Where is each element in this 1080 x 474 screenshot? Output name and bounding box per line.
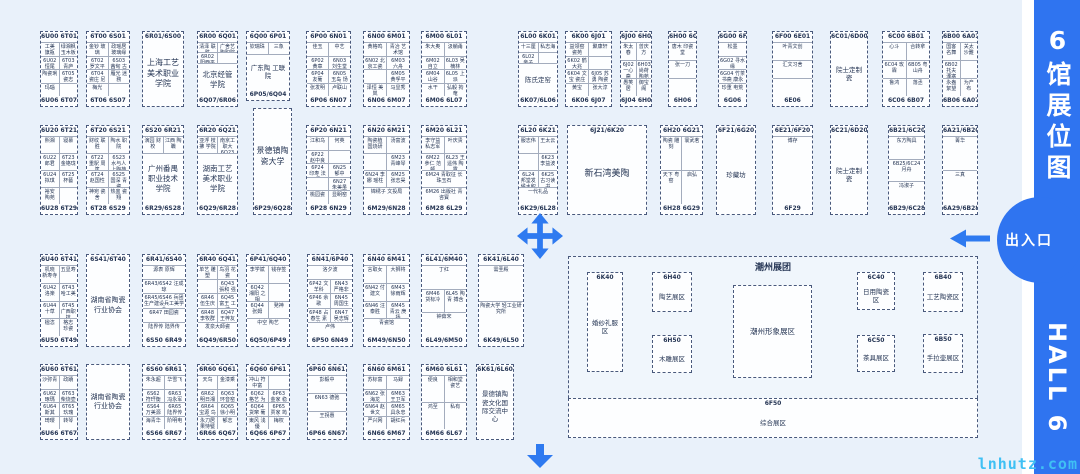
booth-row: 张一刀 [669,60,696,78]
booth-code: 6N00 6M01 [364,32,409,42]
booth-row: 6Q44 张姆発神 [247,301,289,319]
booth-row: 6N63 德弛 [308,393,346,411]
booth-cell: 梅光 [87,84,108,97]
booth-cell: 卢伟 [308,323,352,336]
booth-cell: 演园 财校 [143,137,163,153]
booth-block: 6R41/6S40源表 原辉6R43/6S42 汪成琼6R45/6S46 兵团生… [142,254,186,347]
booth-block: 6U00 6T01工美 旗瓶绿湘枫 玉木板6U02 恒尾6T03 青庐陶瓷琍6T… [40,31,78,107]
booth-code: 6P66 6N67 [308,429,346,439]
booth-cell: 钟茹宋 [422,313,466,336]
booth-cell: 6M45 青云 庚扬 [386,302,409,319]
booth-block: 6R40 6Q41单艺 雕塑鸟羽 花瓷6Q43 張和 强艺6R46 伍生庆6Q4… [197,254,238,347]
booth-row: 财纹 联胜陶水 职院 [87,136,129,153]
booth-cell: 政蹟 [59,376,78,389]
booth-row: 6K02 鹤大兆 [566,56,611,70]
booth-cell: 6Q64 货窜 葡家 [247,403,268,416]
booth-cell: 6P63 金家 稳藏 [268,390,290,403]
booth-cell: 6H03 尚荷 陶苑 [636,61,652,78]
booth-cell: 显眀窑 [328,191,350,204]
booth-row: 6S62 符玕衡6R63 冯永军 [143,389,185,403]
booth-code: 6C06 6B07 [883,96,929,106]
booth-cell: 6M22 參仁 范顿 [422,154,444,170]
booth-cell: 6R45/6S46 兵团生产建设兵工美学会 [143,294,185,307]
booth-cell: 热盅 瓷翔 [108,188,130,204]
booth-row: 东方陶具 [889,136,924,159]
booth-block: 6P60 6N61彭毅中6N63 德弛王拐惠6P66 6N67 [307,364,347,440]
booth-code: 6Q00 6P01 [247,32,289,42]
booth-row: 卢伟 [308,322,352,336]
booth-code: 6F00 6E01 [773,32,812,42]
booth-row: 需圣殿 [479,265,523,301]
booth-cell: 6U22 郎君 [41,154,59,170]
booth-cell: 朱永超 [143,376,164,389]
booth-block: 6B50手拉壶展区 [923,334,963,373]
booth-row: 江和乌何英 [307,136,350,150]
booth-cell: 6T43 哈工美 [59,284,78,301]
booth-cell: 汲躺甬 [444,43,467,56]
booth-cell: 6M25 张志昊 [386,171,409,187]
booth-code: 6S50 6R49 [143,336,185,346]
booth-row: 6T24 赵国性6S25 国深 青瓷 [87,170,129,187]
booth-row: 海青华阶明电 [143,416,185,430]
booth-code: 6K40 [588,273,622,283]
booth-cell [217,53,237,62]
booth-code: 6H20 6G21 [661,126,702,136]
booth-row: 单艺 雕塑鸟羽 花瓷 [198,265,237,279]
booth-cell: 6M46 货标冷 [422,290,444,313]
booth-code: 6K00 6J01 [566,32,611,42]
booth-code: 6N66 6M67 [364,429,409,439]
booth-block: 6N40 6M41言取女大狮将6N42 付建文6M43 徐雨辉6N46 汪泰胜6… [363,254,410,347]
booth-row: 6T04 瓷庄 尼土雁光 迷務 [87,69,129,83]
booth-block: 6H40陶艺展区 [652,272,692,312]
booth-row: 中空 陶艺 [247,318,289,336]
booth-cell: 珍重 电荒 [719,84,746,97]
booth-cell: 6N46 汪泰胜 [364,302,386,319]
booth-cell: 李学斌 [247,266,268,283]
booth-code: 6T28 6S29 [87,204,129,214]
booth-cell: 6C04 玫霖 [883,61,906,78]
booth-cell: 6N64 赵世文 [364,403,386,416]
booth-row: 陆界传 陆界传 [143,322,185,336]
booth-cell: 严兴网 [364,417,386,430]
booth-row: 桃园瓷显眀窑 [307,190,350,204]
booth-cell: 6P22 赵中良 [307,151,328,164]
booth-cell: 何英 [328,137,350,150]
booth-row: 陶瓷大学 轻工业研究所 [479,301,523,337]
booth-code: 6Q07/6R06 [198,96,237,106]
booth-row: 国客 名舞关太 沙難 [943,42,977,60]
booth-block: 6R00 6Q01清泽 联胜广舍艺 陶职院6R02 阳西平北京经管学院6Q07/… [197,31,238,107]
booth-label: 婚纱礼服区 [588,283,622,371]
booth-block: 6L41/6M40丁红6M46 货标冷6L45 陶青 搏含钟茹宋6L49/6M5… [421,254,467,347]
booth-block: 6Q00 6P01钦瑞珠三象广东陶 工联院6P05/6Q04 [246,31,290,101]
booth-code: 6R29/6S28 [143,204,183,214]
booth-cell: 阶明电 [164,417,186,430]
booth-code: 6K06 6J07 [566,96,611,106]
booth-label: 日用陶瓷区 [858,283,894,309]
booth-row: 天下 粤窑启弘 [661,170,702,204]
booth-code: 6B00 6A01 [943,32,977,42]
booth-row: 李学斌钱存签 [247,265,289,283]
booth-row: 6B25/6C24 月舟 [889,159,924,182]
booth-code: 6S20 6R21 [143,126,183,136]
booth-cell [268,376,290,389]
booth-cell: 清泽 联胜 [198,43,217,52]
booth-cell: 6M23 青峰琴 [386,154,409,170]
booth-cell [588,57,611,70]
booth-block: 6A21/6B20菁华三真6A29/6B28 [942,125,978,215]
booth-cell: 王拐惠 [308,412,346,429]
booth-cell: 6N62 张海龙 [364,390,386,403]
booth-row: 6M04 山谷6L05 上派 [422,69,466,83]
booth-row: 彭毅中 [308,375,346,393]
booth-cell: 唐木 印瓷堂 [669,43,696,60]
booth-code: 6Q50/6P49 [247,336,289,346]
booth-cell: 6G02 寻水缘 [719,57,746,70]
booth-row: 6N27 朱美虽 [307,177,350,191]
booth-code: 6J04 6H05 [621,96,651,106]
booth-row: 沙弥青政蹟 [41,375,77,389]
booth-cell: 6N03 刘生堂 [328,57,350,70]
booth-row: 6U42 洛楽6T43 哈工美 [41,283,77,301]
booth-code: 6K07/6L06 [519,96,557,106]
booth-row: 6Q42 湘阳 之相 [247,283,289,301]
booth-cell: 广舍艺 陶职院 [217,43,237,52]
booth-row: 6B02 托夫 溧塞 [943,60,977,78]
booth-cell: 6M02 自立 [422,57,444,70]
booth-cell: 张大淳 [588,84,611,97]
booth-code: 6U50 6T49 [41,336,77,346]
booth-cell [108,84,130,97]
booth-row: 6Q64 货窜 葡家6P65 贾家 筠窑 [247,402,289,416]
booth-row: 熙湘寝慕 [41,136,77,153]
booth-block: 6R20 6Q21亚浮 枝拂 学院南京工 职大 6Q23 李枝顺湖南工艺美术职业… [197,125,238,215]
booth-cell: 东方陶具 [889,137,924,159]
booth-cell: 6P48 占春生 素筠 [308,309,330,322]
booth-cell: 6R64 宝源 鸟超 [198,403,217,416]
booth-cell: 6K25 古习读书 [538,171,558,187]
booth-cell: 天下 粤窑 [661,171,681,204]
booth-cell: 6N43 严格非 [330,280,353,293]
booth-cell: 6T04 瓷庄 尼土 [87,70,108,83]
booth-block: 6U40 6T41机晓 新寿寺五显寿6U42 洛楽6T43 哈工美6U44 十草… [40,254,78,347]
booth-block: 6K61/6L60景德镇陶瓷文化国际交流中心 [476,364,514,440]
booth-cell: 江西 陶職 [163,137,184,153]
booth-block: 6P20 6N21江和乌何英6P22 赵中良6P24 印寿 法拜6N25 郁中6… [306,125,351,215]
booth-row: 演园 财校江西 陶職 [143,136,183,153]
booth-cell: 6U24 拟琪 [41,171,59,187]
booth-cell: 裕安 陶苑 [41,188,59,204]
booth-code: 6H28 6G29 [661,204,702,214]
booth-code: 6R01/6S00 [143,32,183,42]
booth-row: 发泉大師瓷 [198,322,237,336]
booth-row: 6R45/6S46 兵团生产建设兵工美学会 [143,293,185,307]
booth-block: 6P00 6N01佳玉中艺6P02 黄章6N03 刘生堂6P04 友葡6N05 … [306,31,351,107]
booth-cell: 6T24 赵国性 [87,171,108,187]
booth-row: 愚笑居御宝阁 [621,78,651,96]
booth-row: 博存 [773,136,812,204]
booth-row: 琦璎转琴 [41,416,77,430]
booth-block: 6M20 6L21李守益 私志军叶庆贵6M22 參仁 范顿6L23 王遥伟 陶露… [421,125,467,215]
booth-row: 一代礼品 [519,187,557,204]
booth-cell: 6R65 陆界传 [164,403,186,416]
booth-row: 6N24 李娜 瑶柱6M25 张志昊 [364,170,409,187]
booth-row: 言取女大狮将 [364,265,409,283]
booth-cell: 锦绣子 文投局 [364,188,409,204]
booth-cell: 钱存签 [268,266,290,283]
booth-label: 院士定制瓷 [831,42,867,106]
booth-row: 永盎 絮望为产 布 [943,78,977,96]
booth-cell: 陆界传 陆界传 [143,323,185,336]
booth-cell: 亚浮 枝拂 学院 [198,137,217,153]
booth-cell: 6R02 阳西平 [198,53,217,62]
booth-cell: 汤富波 [386,137,409,153]
booth-code: 6U28 6T29 [41,204,77,214]
booth-code: 6P41/6Q40 [247,255,289,265]
booth-block: 6B21/6C20东方陶具6B25/6C24 月舟冯淑子6B29/6C28 [888,125,925,215]
booth-row: 李守益 私志军叶庆贵 [422,136,466,153]
booth-code: 6H06 [669,96,696,106]
booth-code: 6M29/6N28 [364,204,409,214]
booth-label: 广东陶 工联院 [247,54,289,91]
booth-block: 6C01/6D00院士定制瓷 [830,31,868,107]
booth-cell: 6R48 李牧群 [198,309,217,322]
booth-row: 机晓 新寿寺五显寿 [41,265,77,283]
booth-row: 6N46 汪泰胜6M45 青云 庚扬 [364,301,409,319]
booth-row: 6M23 青峰琴 [364,153,409,170]
booth-row: 6T22 重駅 周篤6S23 水与人 上陶苑 [87,153,129,170]
booth-row: 洛夕波 [308,265,352,279]
booth-cell: 财纹 联胜 [87,137,108,153]
booth-code: 6G00 6F01 [719,32,746,42]
booth-row: 東风 浅優梅权 [247,416,289,430]
booth-code: 6Q66 6P67 [247,429,289,439]
booth-code: 6A29/6B28 [943,204,977,214]
booth-row: 6M02 自立6L03 吴楠林 [422,56,466,70]
booth-cell: 源表 原辉 [143,266,185,279]
booth-cell: 6U02 恒尾 [41,57,59,70]
booth-cell: 转琴 [59,417,78,430]
booth-cell: 6S25 国深 青瓷 [108,171,130,187]
booth-block: 6R60 6Q61天鸟金漆乘6R62 明日湘窑6Q63 环音窑6R64 宝源 鸟… [197,364,238,440]
booth-row: 6T02 罗文平6S03 茜甸 古家 [87,56,129,70]
booth-code: 6L49/6M50 [422,336,466,346]
booth-cell: 私志海 [538,43,558,52]
booth-cell: 华雪飞 [164,376,186,389]
booth-cell: 6L05 上派 [444,70,467,83]
booth-row: 6P42 文羊科6N43 严格非 [308,279,352,293]
booth-code: 6N06 6M07 [364,96,409,106]
booth-cell: 6U44 十草 [41,302,59,319]
booth-code: 6M00 6L01 [422,32,466,42]
booth-row: 张发明卢联山 [307,83,350,97]
booth-label: 广州番禺职业技术学院 [143,153,183,205]
booth-cell: 李守益 私志军 [422,137,444,153]
booth-cell: 南京工 职大 6Q23 李枝顺 [217,137,237,153]
booth-row: 锦绣子 文投局 [364,187,409,204]
booth-row: 严兴网胡红兵 [364,416,409,430]
booth-code: 6U20 6T21 [41,126,77,136]
booth-block: 6T20 6S21财纹 联胜陶水 职院6T22 重駅 周篤6S23 水与人 上陶… [86,125,130,215]
booth-row: 亚浮 枝拂 学院南京工 职大 6Q23 李枝顺 [198,136,237,153]
booth-code: 6P50 6N49 [308,336,352,346]
booth-row: 天鸟金漆乘 [198,375,237,389]
booth-row: 6R62 明日湘窑6Q63 环音窑 [198,389,237,403]
booth-cell: 心斗 [883,43,906,60]
booth-row: 梅光 [87,83,129,97]
booth-block: 6B40工艺陶瓷区 [923,272,963,312]
booth-code: 6P29/6Q28 [254,204,291,214]
booth-block: 6P41/6Q40李学斌钱存签6Q42 湘阳 之相6Q44 张姆発神中空 陶艺6… [246,254,290,347]
booth-cell: 黄格鸣 [364,43,386,56]
booth-cell: 6S03 茜甸 古家 [108,57,130,70]
booth-row: 6J02 一心斋6H03 尚荷 陶苑 [621,60,651,78]
hall-name: HALL 6 [1034,322,1080,434]
booth-block: 6J00 6H01朱太春曾庆方6J02 一心斋6H03 尚荷 陶苑愚笑居御宝阁6… [620,31,652,107]
booth-cell [59,188,78,204]
booth-row [773,78,812,96]
booth-cell: 6R47 田园瓷 [143,309,185,322]
booth-cell: 6R62 明日湘窑 [198,390,217,403]
booth-cell: 6P02 黄章 [307,57,328,70]
booth-cell: 6U62 琢瑪 [41,390,59,403]
booth-cell: 6Q42 湘阳 之相 [247,284,268,301]
booth-block: 6L20 6K21服志伟王太云6K23 李益波6L24 邦堂发 候水积6K25 … [518,125,558,215]
booth-cell: 马録 [386,376,409,389]
booth-row: 永刀居 果恃甓郁志 [198,416,237,430]
booth-code: 6K49/6L50 [479,336,523,346]
booth-block: 6N41/6P40洛夕波6P42 文羊科6N43 严格非6P46 余歌6N45 … [307,254,353,347]
booth-cell: 6N24 李娜 瑶柱 [364,171,386,187]
booth-cell: 落丞 [906,79,930,96]
booth-row: 6R48 李牧群6Q47 王梓友 [198,308,237,322]
booth-row: 工美 旗瓶绿湘枫 玉木板 [41,42,77,56]
booth-row [669,78,696,96]
booth-label: 潮州展团 [755,263,791,275]
booth-cell: 6M05 黄孚平 [386,70,409,83]
booth-row: 6P22 赵中良 [307,150,350,164]
booth-label: 湖南省陶瓷行业协会 [87,365,129,439]
booth-row: 青瓷馆 [364,318,409,336]
booth-row: 6L02 亲子 [519,52,557,62]
booth-code: 6N60 6M61 [364,365,409,375]
booth-code: 6Q29/6R28 [198,204,237,214]
booth-code: 6T06 6S07 [87,96,129,106]
booth-code: 6P20 6N21 [307,126,350,136]
booth-cell: 6Q43 張和 强艺 [217,280,237,293]
booth-cell [364,70,386,83]
booth-code: 6M20 6L21 [422,126,466,136]
booth-row: 便良相和堂 瓷艺 [422,375,466,402]
booth-block: 6F21/6G20珍藏坊 [716,125,756,215]
hall-map-title: 6馆展位图 [1034,26,1080,185]
booth-code: 6G06 [719,96,746,106]
booth-row: 6K23 李益波 [519,153,557,170]
booth-label: 景德镇陶瓷文化国际交流中心 [477,375,513,439]
booth-cell: 合转拿 [906,43,930,60]
booth-code: 6M60 6L61 [422,365,466,375]
booth-cell: 6S23 水与人 上陶苑 [108,154,130,170]
booth-cell: 6B02 托夫 溧塞 [943,61,960,78]
booth-row: 6M22 參仁 范顿6L23 王遥伟 陶露 [422,153,466,170]
booth-cell: 工美 旗瓶 [41,43,59,56]
booth-code: 6T00 6S01 [87,32,129,42]
booth-row: 6M05 黄孚平 [364,69,409,83]
booth-cell: 6L03 吴楠林 [444,57,467,70]
booth-cell: 发泉大師瓷 [198,323,237,336]
booth-label: 北京经管学院 [198,63,237,96]
booth-cell: 机晓 新寿寺 [41,266,59,283]
booth-row: 朱永超华雪飞 [143,375,185,389]
booth-label: 陶艺展区 [653,283,691,311]
booth-row: 6G04 竹茶书斋 康永生 [719,69,746,83]
booth-block: 6F00 6E01叶青文创汇文习舍6E06 [772,31,813,107]
booth-cell: 6Q65 徐小明 [217,403,237,416]
booth-cell: 愚笑居 [621,79,636,96]
booth-cell: 熙湘 [41,137,59,153]
booth-cell: 曾庆方 [636,43,652,60]
booth-code: 6F29 [773,204,812,214]
booth-cell: 需圣殿 [479,266,523,301]
booth-code: 6B40 [924,273,962,283]
booth-cell: 桃园瓷 [307,191,328,204]
booth-code: 6L41/6M40 [422,255,466,265]
booth-cell: 6T03 青庐 [59,57,78,70]
booth-code: 6P60 6N61 [308,365,346,375]
booth-block: 6F50综合展区 [568,398,978,438]
booth-cell: 汇文习舍 [773,61,812,78]
booth-cell [773,79,812,96]
booth-row: 6U62 琢瑪6T63 柴烧壶 [41,389,77,403]
booth-block: 6L00 6K01十三厘私志海6L02 亲子陈氏定窑6K07/6L06 [518,31,558,107]
booth-cell: 中艺 [328,43,350,56]
booth-code: 6C40 [858,273,894,283]
booth-row: 王拐惠 [308,411,346,429]
booth-cell: 朱大奥 [422,43,444,56]
booth-cell: 大狮将 [386,266,409,283]
booth-cell: 6M24 青取征 长珠玉石 [422,171,466,187]
booth-block: 景德镇陶瓷大学6P29/6Q28 [253,108,292,215]
booth-cell: 张发明 [307,84,328,97]
booth-code: 6U60 6T61 [41,365,77,375]
booth-code: 6M28 6L29 [422,204,466,214]
booth-cell: 6R63 冯永军 [164,390,186,403]
booth-code: 6C50 [858,336,894,346]
booth-cell: 冯淑子 [889,182,924,204]
booth-block: 6C21/6D20院士定制瓷 [830,125,868,215]
booth-cell: 永刀居 果恃甓 [198,417,217,430]
booth-cell: 6J02 一心斋 [621,61,636,78]
booth-row: 三真 [943,170,977,204]
booth-code: 6S41/6T40 [87,255,129,265]
booth-code: 6C21/6D20 [831,126,867,136]
booth-cell: 6L45 陶青 搏含 [444,290,467,313]
booth-code: 6U66 6T67 [41,429,77,439]
booth-cell: 6N25 郁中 [328,164,350,177]
booth-cell: 6T63 柴烧壶 [59,390,78,403]
booth-row: 6U22 郎君6T23 金铬珑 [41,153,77,170]
booth-label: 珍藏坊 [717,136,755,214]
booth-cell: 6N02 北京工瓷 [364,57,386,70]
booth-cell: 海青华 [143,417,164,430]
booth-code: 6P05/6Q04 [247,90,289,100]
booth-cell: 6P24 印寿 法拜 [307,164,328,177]
booth-block: 6H00 6G01唐木 印瓷堂张一刀6H06 [668,31,697,107]
booth-block: 6B00 6A01国客 名舞关太 沙難6B02 托夫 溧塞永盎 絮望为产 布6B… [942,31,978,107]
booth-cell: 6Q62 格艺 为应 [247,390,268,403]
booth-cell: 服志伟 [519,137,538,153]
